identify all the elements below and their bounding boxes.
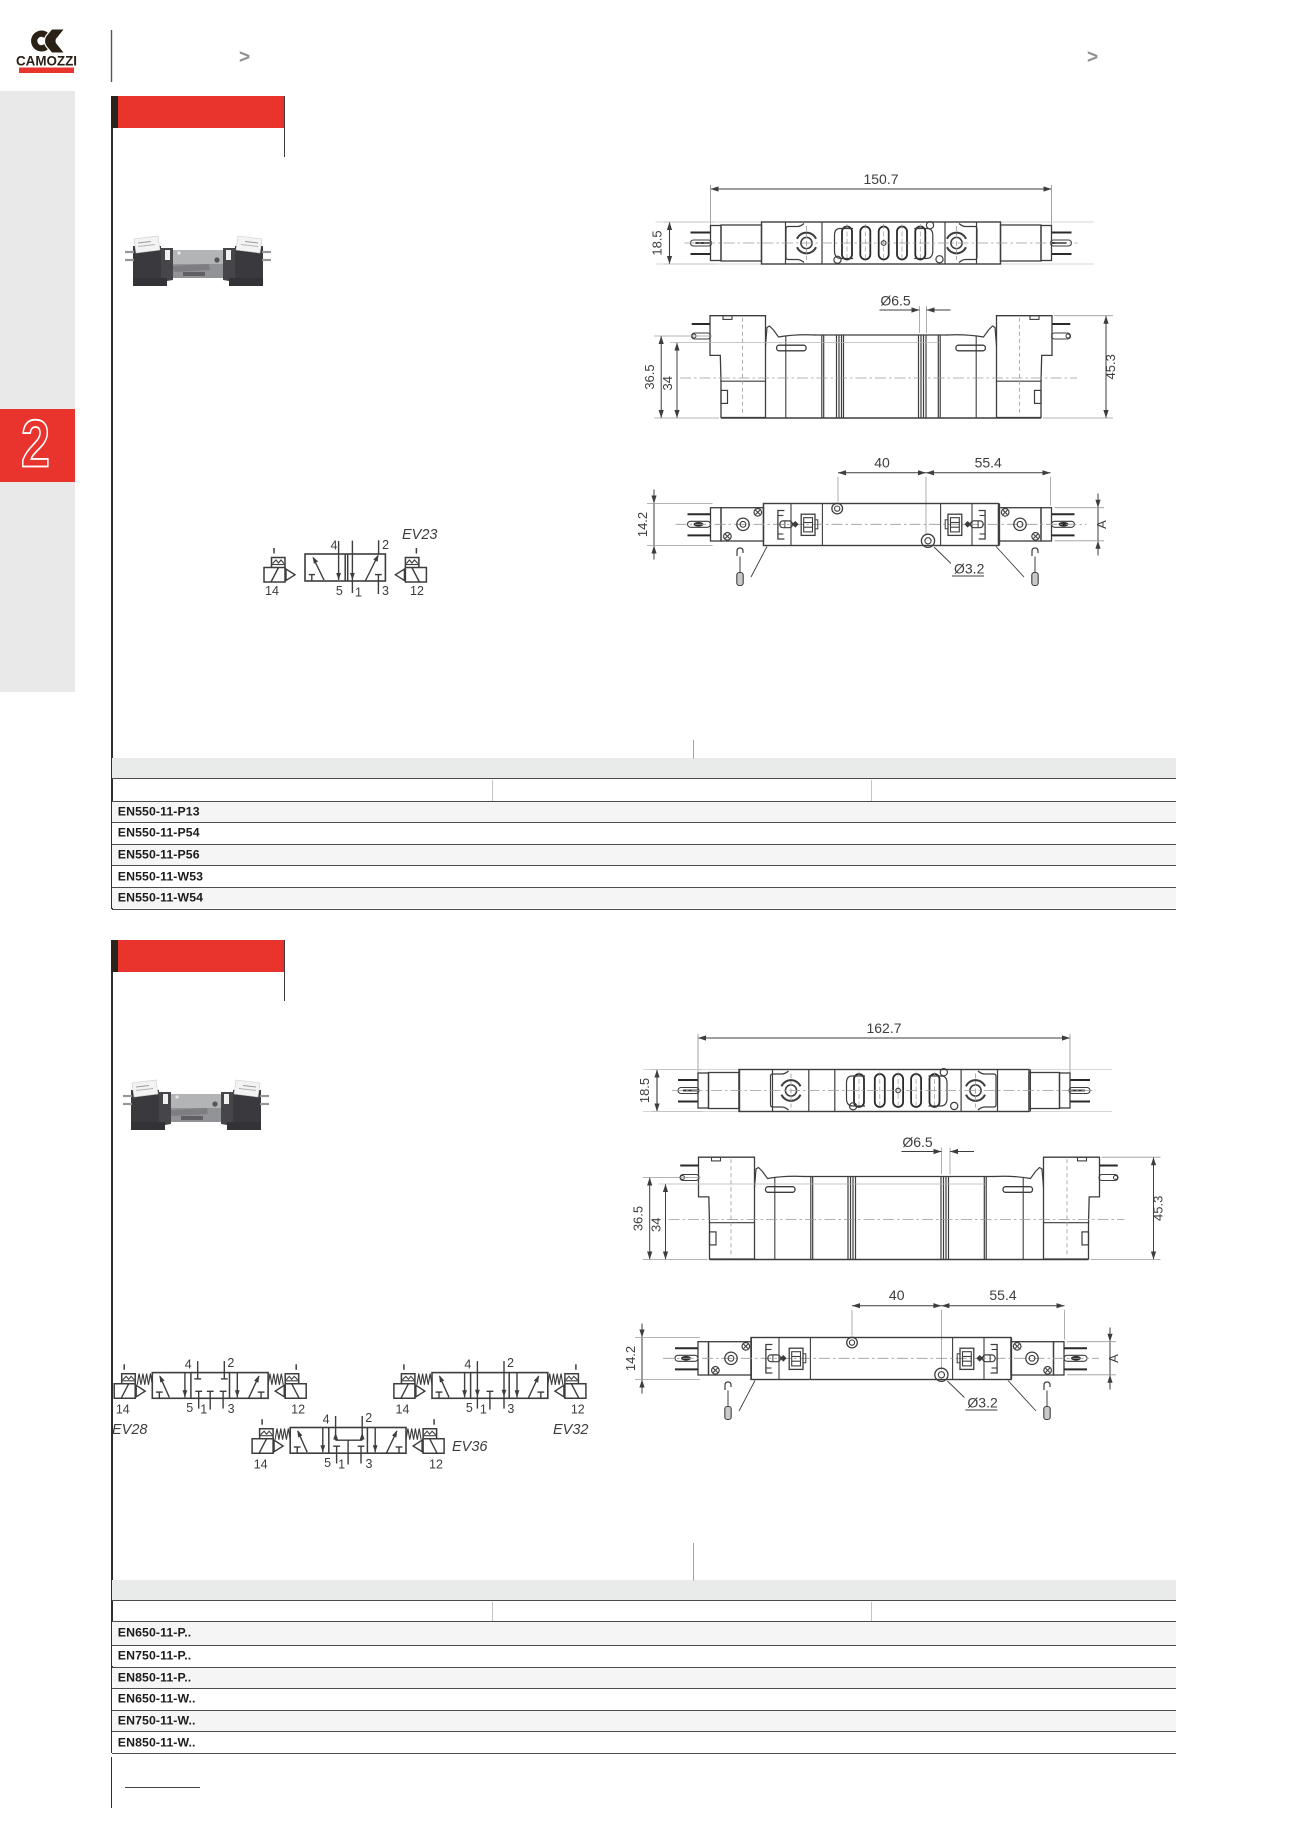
svg-text:2: 2	[507, 1356, 514, 1370]
svg-text:14: 14	[396, 1403, 410, 1417]
svg-text:2: 2	[382, 538, 389, 552]
svg-text:36.5: 36.5	[631, 1206, 646, 1231]
svg-text:36.5: 36.5	[642, 364, 657, 389]
svg-text:EV36: EV36	[452, 1439, 488, 1455]
svg-text:EV28: EV28	[112, 1422, 147, 1438]
svg-text:14.2: 14.2	[635, 512, 650, 537]
svg-text:12: 12	[429, 1458, 443, 1472]
svg-text:Ø6.5: Ø6.5	[880, 293, 911, 309]
svg-text:4: 4	[464, 1358, 471, 1372]
svg-text:4: 4	[331, 539, 338, 553]
svg-text:12: 12	[410, 584, 424, 598]
svg-text:1: 1	[338, 1458, 345, 1472]
svg-text:34: 34	[660, 376, 675, 390]
svg-text:162.7: 162.7	[866, 1020, 901, 1036]
svg-text:1: 1	[480, 1403, 487, 1417]
svg-text:EV23: EV23	[402, 527, 437, 543]
svg-text:1: 1	[200, 1403, 207, 1417]
svg-text:2: 2	[227, 1356, 234, 1370]
svg-text:12: 12	[291, 1403, 305, 1417]
svg-text:14: 14	[254, 1458, 268, 1472]
svg-text:14: 14	[116, 1403, 130, 1417]
svg-text:12: 12	[571, 1403, 585, 1417]
svg-text:14: 14	[265, 584, 279, 598]
svg-text:55.4: 55.4	[975, 454, 1002, 470]
svg-text:45.3: 45.3	[1150, 1196, 1165, 1221]
svg-text:40: 40	[889, 1287, 905, 1303]
svg-text:3: 3	[507, 1402, 514, 1416]
svg-text:A: A	[1106, 1354, 1121, 1363]
svg-text:5: 5	[336, 584, 343, 598]
svg-text:Ø3.2: Ø3.2	[954, 561, 985, 577]
svg-text:Ø6.5: Ø6.5	[902, 1134, 933, 1150]
svg-text:5: 5	[466, 1401, 473, 1415]
svg-text:150.7: 150.7	[863, 171, 898, 187]
svg-text:55.4: 55.4	[989, 1287, 1016, 1303]
svg-text:5: 5	[324, 1456, 331, 1470]
svg-text:Ø3.2: Ø3.2	[967, 1395, 998, 1411]
svg-text:45.3: 45.3	[1103, 354, 1118, 379]
svg-text:3: 3	[382, 584, 389, 598]
svg-text:40: 40	[874, 454, 890, 470]
svg-text:2: 2	[365, 1411, 372, 1425]
svg-text:5: 5	[186, 1401, 193, 1415]
svg-text:3: 3	[228, 1402, 235, 1416]
svg-text:A: A	[1094, 520, 1109, 529]
svg-text:14.2: 14.2	[623, 1346, 638, 1371]
svg-text:EV32: EV32	[553, 1422, 588, 1438]
svg-text:4: 4	[323, 1413, 330, 1427]
svg-text:3: 3	[366, 1457, 373, 1471]
svg-text:CAMOZZI: CAMOZZI	[16, 54, 77, 69]
svg-text:1: 1	[355, 586, 362, 600]
svg-text:18.5: 18.5	[650, 230, 665, 255]
svg-text:34: 34	[649, 1218, 664, 1232]
svg-text:18.5: 18.5	[637, 1078, 652, 1103]
svg-text:4: 4	[185, 1358, 192, 1372]
